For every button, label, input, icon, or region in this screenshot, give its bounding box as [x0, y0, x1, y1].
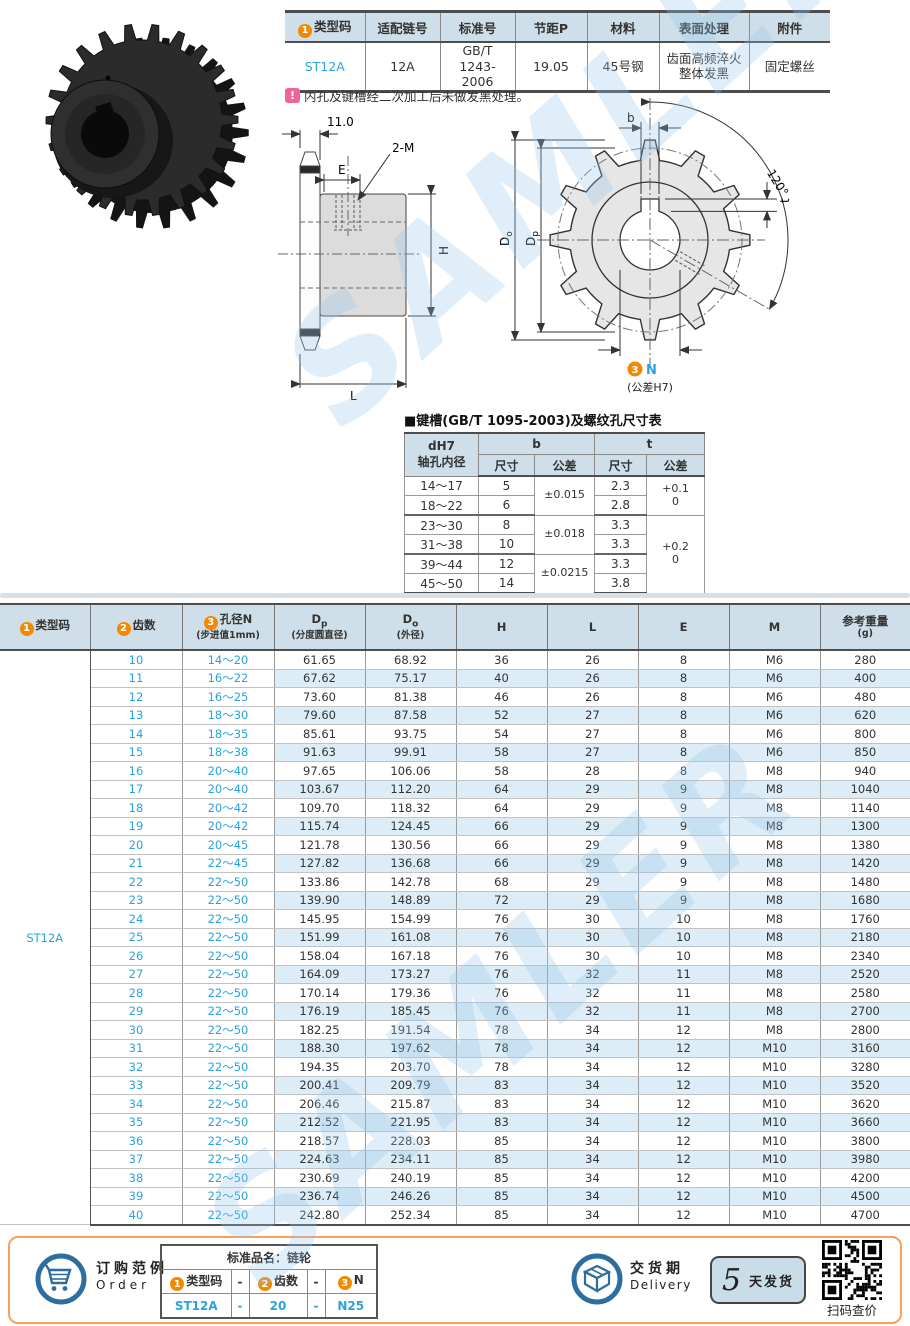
- keyway-bore-range: 14～17: [405, 476, 479, 496]
- dim-l: 34: [547, 1095, 638, 1114]
- weight: 480: [820, 688, 910, 707]
- dim-e: 8: [638, 706, 729, 725]
- column-header: Dp(分度圆直径): [274, 604, 365, 650]
- column-header: H: [456, 604, 547, 650]
- keyway-b-size: 10: [479, 535, 535, 555]
- teeth-count: 14: [90, 725, 182, 744]
- outer-diameter: 112.20: [365, 780, 456, 799]
- catalog-page: 1类型码适配链号标准号节距P材料表面处理附件 ST12A12AGB/T 1243…: [0, 0, 910, 1326]
- teeth-count: 30: [90, 1021, 182, 1040]
- dim-h: 64: [456, 799, 547, 818]
- column-header: E: [638, 604, 729, 650]
- dim-l: 32: [547, 965, 638, 984]
- dim-e: 12: [638, 1169, 729, 1188]
- keyway-table-title: ■键槽(GB/T 1095-2003)及螺纹孔尺寸表: [404, 410, 704, 429]
- pitch-diameter: 73.60: [274, 688, 365, 707]
- weight: 940: [820, 762, 910, 781]
- dim-h: 83: [456, 1076, 547, 1095]
- weight: 3160: [820, 1039, 910, 1058]
- pitch-diameter: 206.46: [274, 1095, 365, 1114]
- weight: 1040: [820, 780, 910, 799]
- pitch-diameter: 139.90: [274, 891, 365, 910]
- spec-table-body: ST12A12AGB/T 1243- 200619.0545号钢齿面高频淬火 整…: [285, 42, 830, 91]
- spec-value: 齿面高频淬火 整体发黑: [659, 42, 749, 91]
- dim-h: 85: [456, 1132, 547, 1151]
- dim-l: 27: [547, 743, 638, 762]
- table-row: 1418～3585.6193.7554278M6800: [0, 725, 910, 744]
- table-row: 1820～42109.70118.3264299M81140: [0, 799, 910, 818]
- keyway-t-tolerance: +0.1 0: [647, 476, 705, 515]
- outer-diameter: 154.99: [365, 910, 456, 929]
- bore-range: 22～50: [182, 1113, 274, 1132]
- pitch-diameter: 200.41: [274, 1076, 365, 1095]
- dim-l: 26: [547, 669, 638, 688]
- outer-diameter: 68.92: [365, 650, 456, 669]
- weight: 1420: [820, 854, 910, 873]
- bore-range: 22～50: [182, 1021, 274, 1040]
- weight: 2340: [820, 947, 910, 966]
- keyway-bore-range: 39～44: [405, 554, 479, 574]
- dim-l: 34: [547, 1132, 638, 1151]
- order-value: -: [231, 1294, 249, 1319]
- bore-range: 20～42: [182, 799, 274, 818]
- dim-h: 76: [456, 947, 547, 966]
- keyway-b-size: 6: [479, 496, 535, 516]
- bore-range: 22～50: [182, 1002, 274, 1021]
- order-example-en: Order: [96, 1278, 168, 1292]
- table-row: 2922～50176.19185.45763211M82700: [0, 1002, 910, 1021]
- weight: 4500: [820, 1187, 910, 1206]
- thread-m: M8: [729, 928, 820, 947]
- plate-body: [300, 173, 320, 329]
- weight: 3520: [820, 1076, 910, 1095]
- main-table: 1类型码2齿数3孔径N(步进值1mm)Dp(分度圆直径)Do(外径)HLEM参考…: [0, 603, 910, 1226]
- dim-b-label: b: [627, 111, 635, 125]
- table-row: 3122～50188.30197.62783412M103160: [0, 1039, 910, 1058]
- dim-h: 40: [456, 669, 547, 688]
- thread-m: M10: [729, 1206, 820, 1225]
- teeth-count: 19: [90, 817, 182, 836]
- column-header: 3孔径N(步进值1mm): [182, 604, 274, 650]
- pitch-diameter: 176.19: [274, 1002, 365, 1021]
- column-header: 标准号: [440, 12, 515, 43]
- dim-l-label: L: [350, 389, 357, 403]
- outer-diameter: 118.32: [365, 799, 456, 818]
- weight: 850: [820, 743, 910, 762]
- teeth-count: 40: [90, 1206, 182, 1225]
- dim-e: 10: [638, 947, 729, 966]
- order-value: -: [307, 1294, 325, 1319]
- keyway-b-size: 12: [479, 554, 535, 574]
- bore-range: 22～50: [182, 1095, 274, 1114]
- dim-l: 26: [547, 688, 638, 707]
- column-header: 2齿数: [90, 604, 182, 650]
- dim-l: 34: [547, 1150, 638, 1169]
- angle-label: 120°: [764, 167, 791, 199]
- outer-diameter: 106.06: [365, 762, 456, 781]
- spec-value: 12A: [365, 42, 440, 91]
- dim-l: 34: [547, 1039, 638, 1058]
- weight: 1680: [820, 891, 910, 910]
- teeth-count: 29: [90, 1002, 182, 1021]
- keyway-sub-header: 尺寸: [595, 455, 647, 477]
- outer-diameter: 75.17: [365, 669, 456, 688]
- bore-range: 14～20: [182, 650, 274, 669]
- footer-bar: 订购范例 Order 标准品名：链轮1类型码-2齿数-3NST12A-20-N2…: [8, 1236, 902, 1324]
- column-header: 表面处理: [659, 12, 749, 43]
- keyway-group-header: b: [479, 433, 595, 455]
- dim-h: 66: [456, 854, 547, 873]
- dim-t-label: t: [778, 198, 792, 203]
- weight: 800: [820, 725, 910, 744]
- bore-range: 18～35: [182, 725, 274, 744]
- dim-e: 9: [638, 817, 729, 836]
- table-row: 1920～42115.74124.4566299M81300: [0, 817, 910, 836]
- weight: 2520: [820, 965, 910, 984]
- table-row: 2722～50164.09173.27763211M82520: [0, 965, 910, 984]
- keyway-t-size: 3.3: [595, 535, 647, 555]
- teeth-count: 17: [90, 780, 182, 799]
- cart-icon: [34, 1252, 88, 1306]
- outer-diameter: 240.19: [365, 1169, 456, 1188]
- pitch-diameter: 133.86: [274, 873, 365, 892]
- dim-l: 34: [547, 1169, 638, 1188]
- weight: 3800: [820, 1132, 910, 1151]
- pitch-diameter: 170.14: [274, 984, 365, 1003]
- teeth-count: 24: [90, 910, 182, 929]
- spec-value: GB/T 1243- 2006: [440, 42, 515, 91]
- dim-e: 9: [638, 780, 729, 799]
- bore-range: 22～50: [182, 928, 274, 947]
- keyway-sub-header: 公差: [535, 455, 595, 477]
- type-code-cell: ST12A: [0, 650, 90, 1225]
- table-row: 3722～50224.63234.11853412M103980: [0, 1150, 910, 1169]
- weight: 2180: [820, 928, 910, 947]
- bore-range: 22～50: [182, 947, 274, 966]
- circled-number-1: 1: [170, 1277, 184, 1291]
- weight: 1760: [820, 910, 910, 929]
- thread-m: M8: [729, 1002, 820, 1021]
- dim-l: 30: [547, 928, 638, 947]
- outer-diameter: 124.45: [365, 817, 456, 836]
- weight: 2800: [820, 1021, 910, 1040]
- spec-table: 1类型码适配链号标准号节距P材料表面处理附件 ST12A12AGB/T 1243…: [285, 10, 830, 93]
- outer-diameter: 179.36: [365, 984, 456, 1003]
- bore-range: 20～42: [182, 817, 274, 836]
- thread-m: M8: [729, 762, 820, 781]
- thread-m: M10: [729, 1169, 820, 1188]
- column-header: 适配链号: [365, 12, 440, 43]
- table-row: 2222～50133.86142.7868299M81480: [0, 873, 910, 892]
- dim-width-label: 11.0: [327, 115, 354, 129]
- weight: 2700: [820, 1002, 910, 1021]
- bore-range: 16～25: [182, 688, 274, 707]
- keyway-b-size: 8: [479, 515, 535, 535]
- thread-m: M10: [729, 1150, 820, 1169]
- front-view-drawing: 120° b t Do Dp: [485, 88, 820, 400]
- column-header: L: [547, 604, 638, 650]
- column-header: 1类型码: [0, 604, 90, 650]
- pitch-diameter: 127.82: [274, 854, 365, 873]
- teeth-count: 28: [90, 984, 182, 1003]
- thread-m: M8: [729, 891, 820, 910]
- set-screw: [106, 76, 111, 81]
- bore-range: 18～30: [182, 706, 274, 725]
- dim-e: 12: [638, 1095, 729, 1114]
- dim-l: 34: [547, 1021, 638, 1040]
- weight: 1380: [820, 836, 910, 855]
- delivery-days-badge: 5 天发货: [710, 1256, 806, 1304]
- bore-range: 22～50: [182, 984, 274, 1003]
- keyway-bore-range: 23～30: [405, 515, 479, 535]
- teeth-count: 21: [90, 854, 182, 873]
- teeth-count: 33: [90, 1076, 182, 1095]
- pitch-diameter: 91.63: [274, 743, 365, 762]
- thread-m: M10: [729, 1095, 820, 1114]
- dim-h: 36: [456, 650, 547, 669]
- bore-range: 22～50: [182, 1169, 274, 1188]
- pitch-diameter: 212.52: [274, 1113, 365, 1132]
- pitch-diameter: 115.74: [274, 817, 365, 836]
- keyway-t-size: 3.3: [595, 515, 647, 535]
- dim-e: 12: [638, 1058, 729, 1077]
- dim-l: 29: [547, 799, 638, 818]
- table-row: 3622～50218.57228.03853412M103800: [0, 1132, 910, 1151]
- table-row: 3322～50200.41209.79833412M103520: [0, 1076, 910, 1095]
- dim-h: 85: [456, 1169, 547, 1188]
- order-header: 1类型码: [161, 1270, 231, 1294]
- pitch-diameter: 67.62: [274, 669, 365, 688]
- thread-m: M8: [729, 1021, 820, 1040]
- qr-label: 扫码查价: [810, 1300, 894, 1319]
- dim-l: 29: [547, 891, 638, 910]
- order-header: -: [231, 1270, 249, 1294]
- table-row: 2622～50158.04167.18763010M82340: [0, 947, 910, 966]
- table-row: 3922～50236.74246.26853412M104500: [0, 1187, 910, 1206]
- dim-e: 9: [638, 799, 729, 818]
- dim-e: 8: [638, 743, 729, 762]
- spec-table-head: 1类型码适配链号标准号节距P材料表面处理附件: [285, 12, 830, 43]
- outer-diameter: 234.11: [365, 1150, 456, 1169]
- weight: 4200: [820, 1169, 910, 1188]
- spec-value: 19.05: [515, 42, 587, 91]
- thread-m: M8: [729, 836, 820, 855]
- dim-e: 12: [638, 1132, 729, 1151]
- outer-diameter: 252.34: [365, 1206, 456, 1225]
- thread-m: M6: [729, 743, 820, 762]
- order-header: 2齿数: [249, 1270, 307, 1294]
- dim-e: 8: [638, 650, 729, 669]
- qr-code: [822, 1240, 882, 1300]
- dim-l: 29: [547, 854, 638, 873]
- weight: 400: [820, 669, 910, 688]
- keyway-t-size: 2.3: [595, 476, 647, 496]
- dim-h: 76: [456, 984, 547, 1003]
- table-row: 1116～2267.6275.1740268M6400: [0, 669, 910, 688]
- bore-range: 20～40: [182, 762, 274, 781]
- dim-e: 12: [638, 1021, 729, 1040]
- outer-diameter: 167.18: [365, 947, 456, 966]
- table-row: 2020～45121.78130.5666299M81380: [0, 836, 910, 855]
- teeth-count: 16: [90, 762, 182, 781]
- dim-l: 32: [547, 984, 638, 1003]
- bore-range: 22～50: [182, 1058, 274, 1077]
- dim-l: 27: [547, 725, 638, 744]
- dim-h: 68: [456, 873, 547, 892]
- section-divider: [0, 593, 910, 598]
- dim-h: 66: [456, 817, 547, 836]
- order-example-title: 订购范例: [96, 1258, 168, 1278]
- column-header: M: [729, 604, 820, 650]
- dim-h: 83: [456, 1095, 547, 1114]
- outer-diameter: 221.95: [365, 1113, 456, 1132]
- keyway-bore-range: 18～22: [405, 496, 479, 516]
- bore-range: 22～50: [182, 910, 274, 929]
- dim-e: 8: [638, 725, 729, 744]
- dim-l: 34: [547, 1113, 638, 1132]
- main-table-head: 1类型码2齿数3孔径N(步进值1mm)Dp(分度圆直径)Do(外径)HLEM参考…: [0, 604, 910, 650]
- keyway-t-size: 2.8: [595, 496, 647, 516]
- outer-diameter: 93.75: [365, 725, 456, 744]
- keyway-bore-range: 45～50: [405, 574, 479, 594]
- main-table-body: ST12A1014～2061.6568.9236268M62801116～226…: [0, 650, 910, 1225]
- keyway-table-body: 14～175±0.0152.3+0.1 018～2262.823～308±0.0…: [405, 476, 705, 593]
- circled-number-2: 2: [258, 1277, 272, 1291]
- dim-h: 78: [456, 1039, 547, 1058]
- plate-top-cap: [300, 152, 320, 166]
- pitch-diameter: 194.35: [274, 1058, 365, 1077]
- table-row: 2422～50145.95154.99763010M81760: [0, 910, 910, 929]
- outer-diameter: 246.26: [365, 1187, 456, 1206]
- order-value: ST12A: [161, 1294, 231, 1319]
- dim-e: 10: [638, 928, 729, 947]
- outer-diameter: 136.68: [365, 854, 456, 873]
- tap-leader-line: [358, 154, 390, 200]
- pitch-diameter: 218.57: [274, 1132, 365, 1151]
- keyway-b-tolerance: ±0.0215: [535, 554, 595, 593]
- order-header: 3N: [325, 1270, 377, 1294]
- order-table: 标准品名：链轮1类型码-2齿数-3NST12A-20-N25: [160, 1244, 378, 1319]
- dim-h: 85: [456, 1206, 547, 1225]
- outer-diameter: 87.58: [365, 706, 456, 725]
- thread-m: M8: [729, 799, 820, 818]
- thread-m: M8: [729, 965, 820, 984]
- dim-e: 12: [638, 1206, 729, 1225]
- bore-range: 22～45: [182, 854, 274, 873]
- side-view-drawing: 11.0 E 2-M H L: [270, 96, 485, 406]
- outer-diameter: 203.70: [365, 1058, 456, 1077]
- outer-diameter: 185.45: [365, 1002, 456, 1021]
- dim-l: 29: [547, 836, 638, 855]
- bore-n-label: N: [646, 363, 657, 378]
- bore-range: 22～50: [182, 1039, 274, 1058]
- outer-diameter: 130.56: [365, 836, 456, 855]
- keyway-table-head: dH7 轴孔内径bt尺寸公差尺寸公差: [405, 433, 705, 476]
- plate-bottom-band: [300, 329, 320, 336]
- dim-h: 76: [456, 1002, 547, 1021]
- column-header: 1类型码: [285, 12, 365, 43]
- thread-m: M8: [729, 817, 820, 836]
- outer-diameter: 142.78: [365, 873, 456, 892]
- dim-l: 30: [547, 947, 638, 966]
- table-row: 1720～40103.67112.2064299M81040: [0, 780, 910, 799]
- column-header: 附件: [749, 12, 830, 43]
- pitch-diameter: 151.99: [274, 928, 365, 947]
- thread-m: M8: [729, 873, 820, 892]
- dim-h: 76: [456, 910, 547, 929]
- teeth-count: 13: [90, 706, 182, 725]
- circled-number-1: 1: [20, 622, 34, 636]
- column-header: 节距P: [515, 12, 587, 43]
- weight: 3280: [820, 1058, 910, 1077]
- table-row: 3422～50206.46215.87833412M103620: [0, 1095, 910, 1114]
- thread-m: M10: [729, 1076, 820, 1095]
- dim-l: 26: [547, 650, 638, 669]
- dim-h: 85: [456, 1150, 547, 1169]
- bore-range: 18～38: [182, 743, 274, 762]
- table-row: 2322～50139.90148.8972299M81680: [0, 891, 910, 910]
- bore-range: 22～50: [182, 1076, 274, 1095]
- pitch-diameter: 242.80: [274, 1206, 365, 1225]
- bore-range: 22～50: [182, 873, 274, 892]
- outer-diameter: 173.27: [365, 965, 456, 984]
- dim-e: 9: [638, 836, 729, 855]
- order-value: N25: [325, 1294, 377, 1319]
- weight: 2580: [820, 984, 910, 1003]
- thread-m: M6: [729, 706, 820, 725]
- keyway-t-tolerance: +0.2 0: [647, 515, 705, 593]
- dim-h: 52: [456, 706, 547, 725]
- dim-e: 12: [638, 1113, 729, 1132]
- teeth-count: 32: [90, 1058, 182, 1077]
- thread-m: M6: [729, 650, 820, 669]
- dim-h: 46: [456, 688, 547, 707]
- outer-diameter: 161.08: [365, 928, 456, 947]
- thread-m: M10: [729, 1039, 820, 1058]
- spec-value: 固定螺丝: [749, 42, 830, 91]
- pitch-diameter: 182.25: [274, 1021, 365, 1040]
- bore-range: 22～50: [182, 891, 274, 910]
- pitch-diameter: 236.74: [274, 1187, 365, 1206]
- teeth-count: 26: [90, 947, 182, 966]
- thread-m: M10: [729, 1058, 820, 1077]
- table-row: 1216～2573.6081.3846268M6480: [0, 688, 910, 707]
- pitch-diameter: 79.60: [274, 706, 365, 725]
- circled-number-2: 2: [117, 622, 131, 636]
- thread-m: M6: [729, 688, 820, 707]
- bore-range: 22～50: [182, 1150, 274, 1169]
- table-row: 3522～50212.52221.95833412M103660: [0, 1113, 910, 1132]
- outer-diameter: 148.89: [365, 891, 456, 910]
- pitch-diameter: 158.04: [274, 947, 365, 966]
- teeth-count: 31: [90, 1039, 182, 1058]
- circled-number-1: 1: [298, 24, 312, 38]
- bore-tolerance-label: (公差H7): [627, 380, 673, 394]
- dim-l: 29: [547, 817, 638, 836]
- teeth-count: 35: [90, 1113, 182, 1132]
- spec-value: ST12A: [285, 42, 365, 91]
- plate-top-band: [300, 166, 320, 173]
- weight: 1140: [820, 799, 910, 818]
- keyway-b-size: 5: [479, 476, 535, 496]
- thread-m: M8: [729, 854, 820, 873]
- pitch-diameter: 224.63: [274, 1150, 365, 1169]
- hub-rect: [320, 194, 406, 316]
- delivery-box-icon: [570, 1252, 624, 1306]
- order-table-body: 标准品名：链轮1类型码-2齿数-3NST12A-20-N25: [161, 1245, 377, 1318]
- dim-e: 12: [638, 1150, 729, 1169]
- weight: 280: [820, 650, 910, 669]
